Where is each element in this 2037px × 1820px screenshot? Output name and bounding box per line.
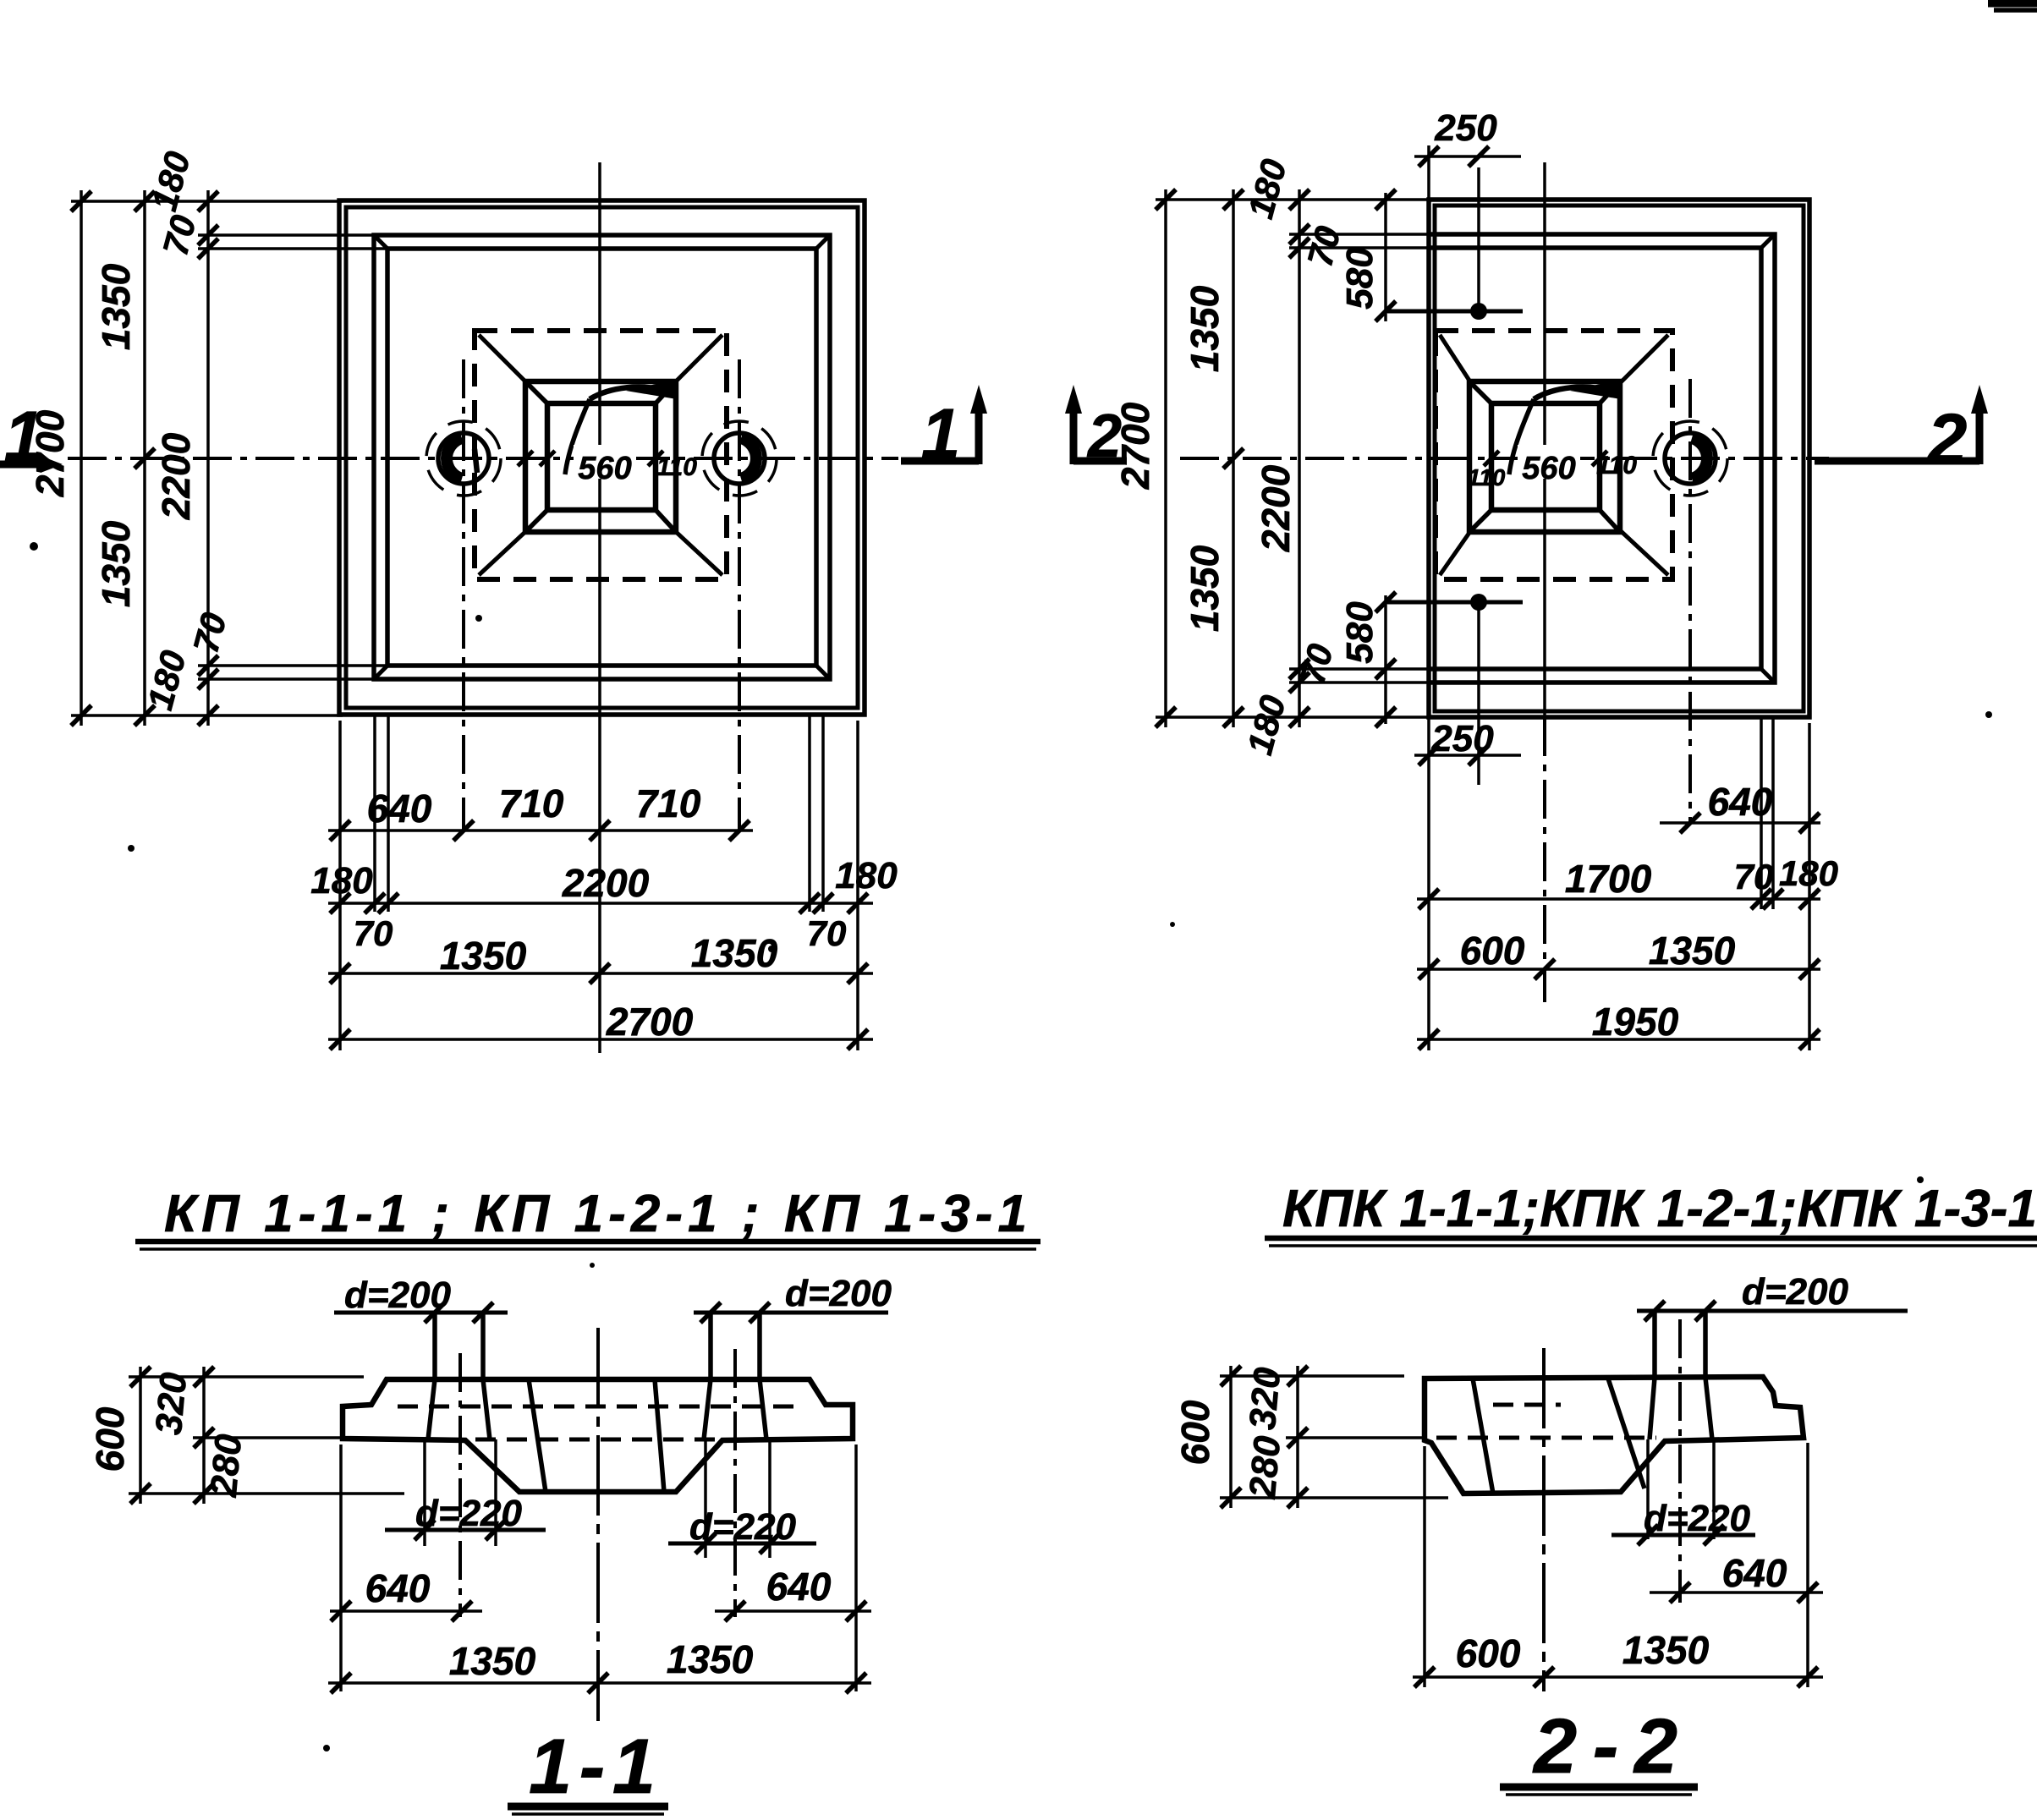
svg-text:600: 600 (88, 1406, 132, 1472)
svg-text:710: 710 (636, 781, 701, 825)
svg-text:600: 600 (1460, 929, 1525, 973)
svg-text:180: 180 (310, 860, 373, 902)
svg-text:2700: 2700 (28, 409, 72, 497)
svg-text:180: 180 (835, 855, 898, 896)
svg-text:2700: 2700 (606, 1000, 694, 1044)
svg-text:d=200: d=200 (785, 1273, 892, 1314)
svg-text:2200: 2200 (562, 861, 650, 905)
svg-text:2200: 2200 (154, 432, 198, 520)
svg-text:1350: 1350 (440, 934, 527, 978)
svg-text:560: 560 (1522, 451, 1575, 486)
svg-text:70: 70 (807, 913, 847, 953)
svg-text:2700: 2700 (1113, 402, 1157, 490)
svg-text:1: 1 (921, 394, 961, 474)
svg-text:2: 2 (1926, 399, 1968, 479)
svg-text:250: 250 (1434, 107, 1497, 149)
svg-text:d=220: d=220 (415, 1493, 523, 1534)
svg-text:1950: 1950 (1592, 1000, 1679, 1044)
svg-text:600: 600 (1173, 1400, 1217, 1465)
svg-text:d=200: d=200 (344, 1275, 452, 1316)
svg-text:320: 320 (148, 1371, 195, 1437)
svg-text:110: 110 (1596, 452, 1637, 480)
svg-text:1700: 1700 (1565, 857, 1652, 901)
svg-text:710: 710 (499, 781, 564, 825)
svg-text:1350: 1350 (691, 931, 778, 975)
svg-text:600: 600 (1456, 1631, 1521, 1675)
svg-text:640: 640 (367, 787, 432, 831)
svg-text:d=220: d=220 (1644, 1498, 1751, 1539)
svg-text:250: 250 (1430, 718, 1494, 759)
svg-text:2-2: 2-2 (1532, 1703, 1677, 1790)
svg-text:70: 70 (354, 913, 393, 953)
svg-text:d=200: d=200 (1742, 1271, 1849, 1313)
svg-text:2200: 2200 (1254, 464, 1298, 552)
svg-text:580: 580 (1339, 601, 1381, 664)
svg-text:1350: 1350 (94, 520, 138, 607)
svg-text:1350: 1350 (94, 263, 138, 350)
svg-text:640: 640 (365, 1566, 431, 1610)
svg-text:70: 70 (1734, 857, 1774, 896)
svg-text:1350: 1350 (449, 1639, 536, 1683)
svg-text:640: 640 (766, 1565, 832, 1609)
svg-text:1350: 1350 (667, 1637, 754, 1681)
svg-text:280: 280 (203, 1433, 250, 1499)
svg-text:1-1: 1-1 (529, 1724, 656, 1810)
svg-text:640: 640 (1708, 780, 1773, 824)
svg-text:110: 110 (1468, 464, 1506, 491)
svg-text:580: 580 (1339, 247, 1381, 310)
svg-text:1350: 1350 (1183, 545, 1227, 632)
svg-text:1350: 1350 (1649, 929, 1736, 973)
svg-text:110: 110 (656, 453, 697, 481)
svg-text:1350: 1350 (1622, 1628, 1710, 1672)
svg-text:280: 280 (1242, 1434, 1288, 1501)
svg-text:640: 640 (1722, 1551, 1787, 1595)
svg-text:560: 560 (578, 451, 631, 486)
svg-text:1350: 1350 (1183, 285, 1227, 372)
svg-text:180: 180 (1779, 853, 1838, 893)
svg-text:d=220: d=220 (689, 1506, 797, 1548)
svg-text:КПК 1-1-1;КПК 1-2-1;КПК 1-3-1: КПК 1-1-1;КПК 1-2-1;КПК 1-3-1 (1282, 1180, 2037, 1238)
